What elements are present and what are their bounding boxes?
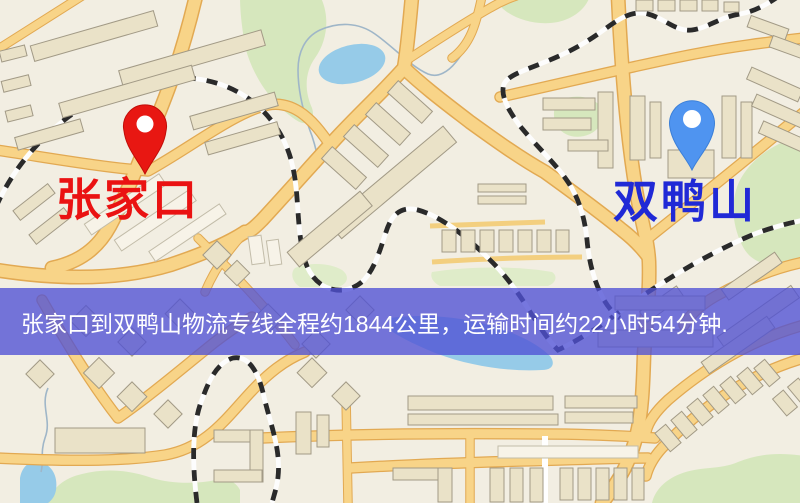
logistics-route-map[interactable]: 张家口 双鸭山 张家口到双鸭山物流专线全程约1844公里，运输时间约22小时54… xyxy=(0,0,800,503)
origin-city-label: 张家口 xyxy=(56,177,200,222)
map-canvas xyxy=(0,0,800,503)
route-info-text: 张家口到双鸭山物流专线全程约1844公里，运输时间约22小时54分钟. xyxy=(0,305,728,339)
route-info-banner: 张家口到双鸭山物流专线全程约1844公里，运输时间约22小时54分钟. xyxy=(0,288,800,355)
destination-city-label: 双鸭山 xyxy=(613,179,757,224)
